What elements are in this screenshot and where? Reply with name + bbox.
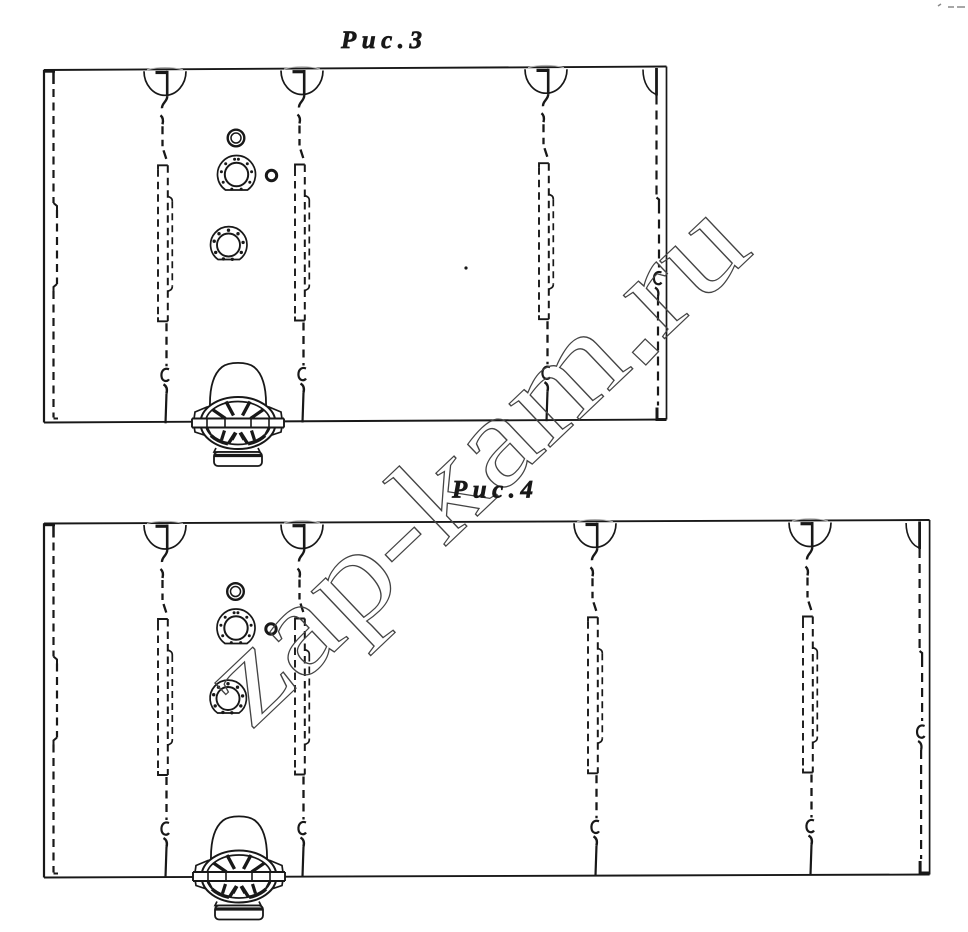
svg-text:Рис.4: Рис.4 — [451, 477, 539, 504]
svg-text:Рис.3: Рис.3 — [340, 27, 428, 54]
